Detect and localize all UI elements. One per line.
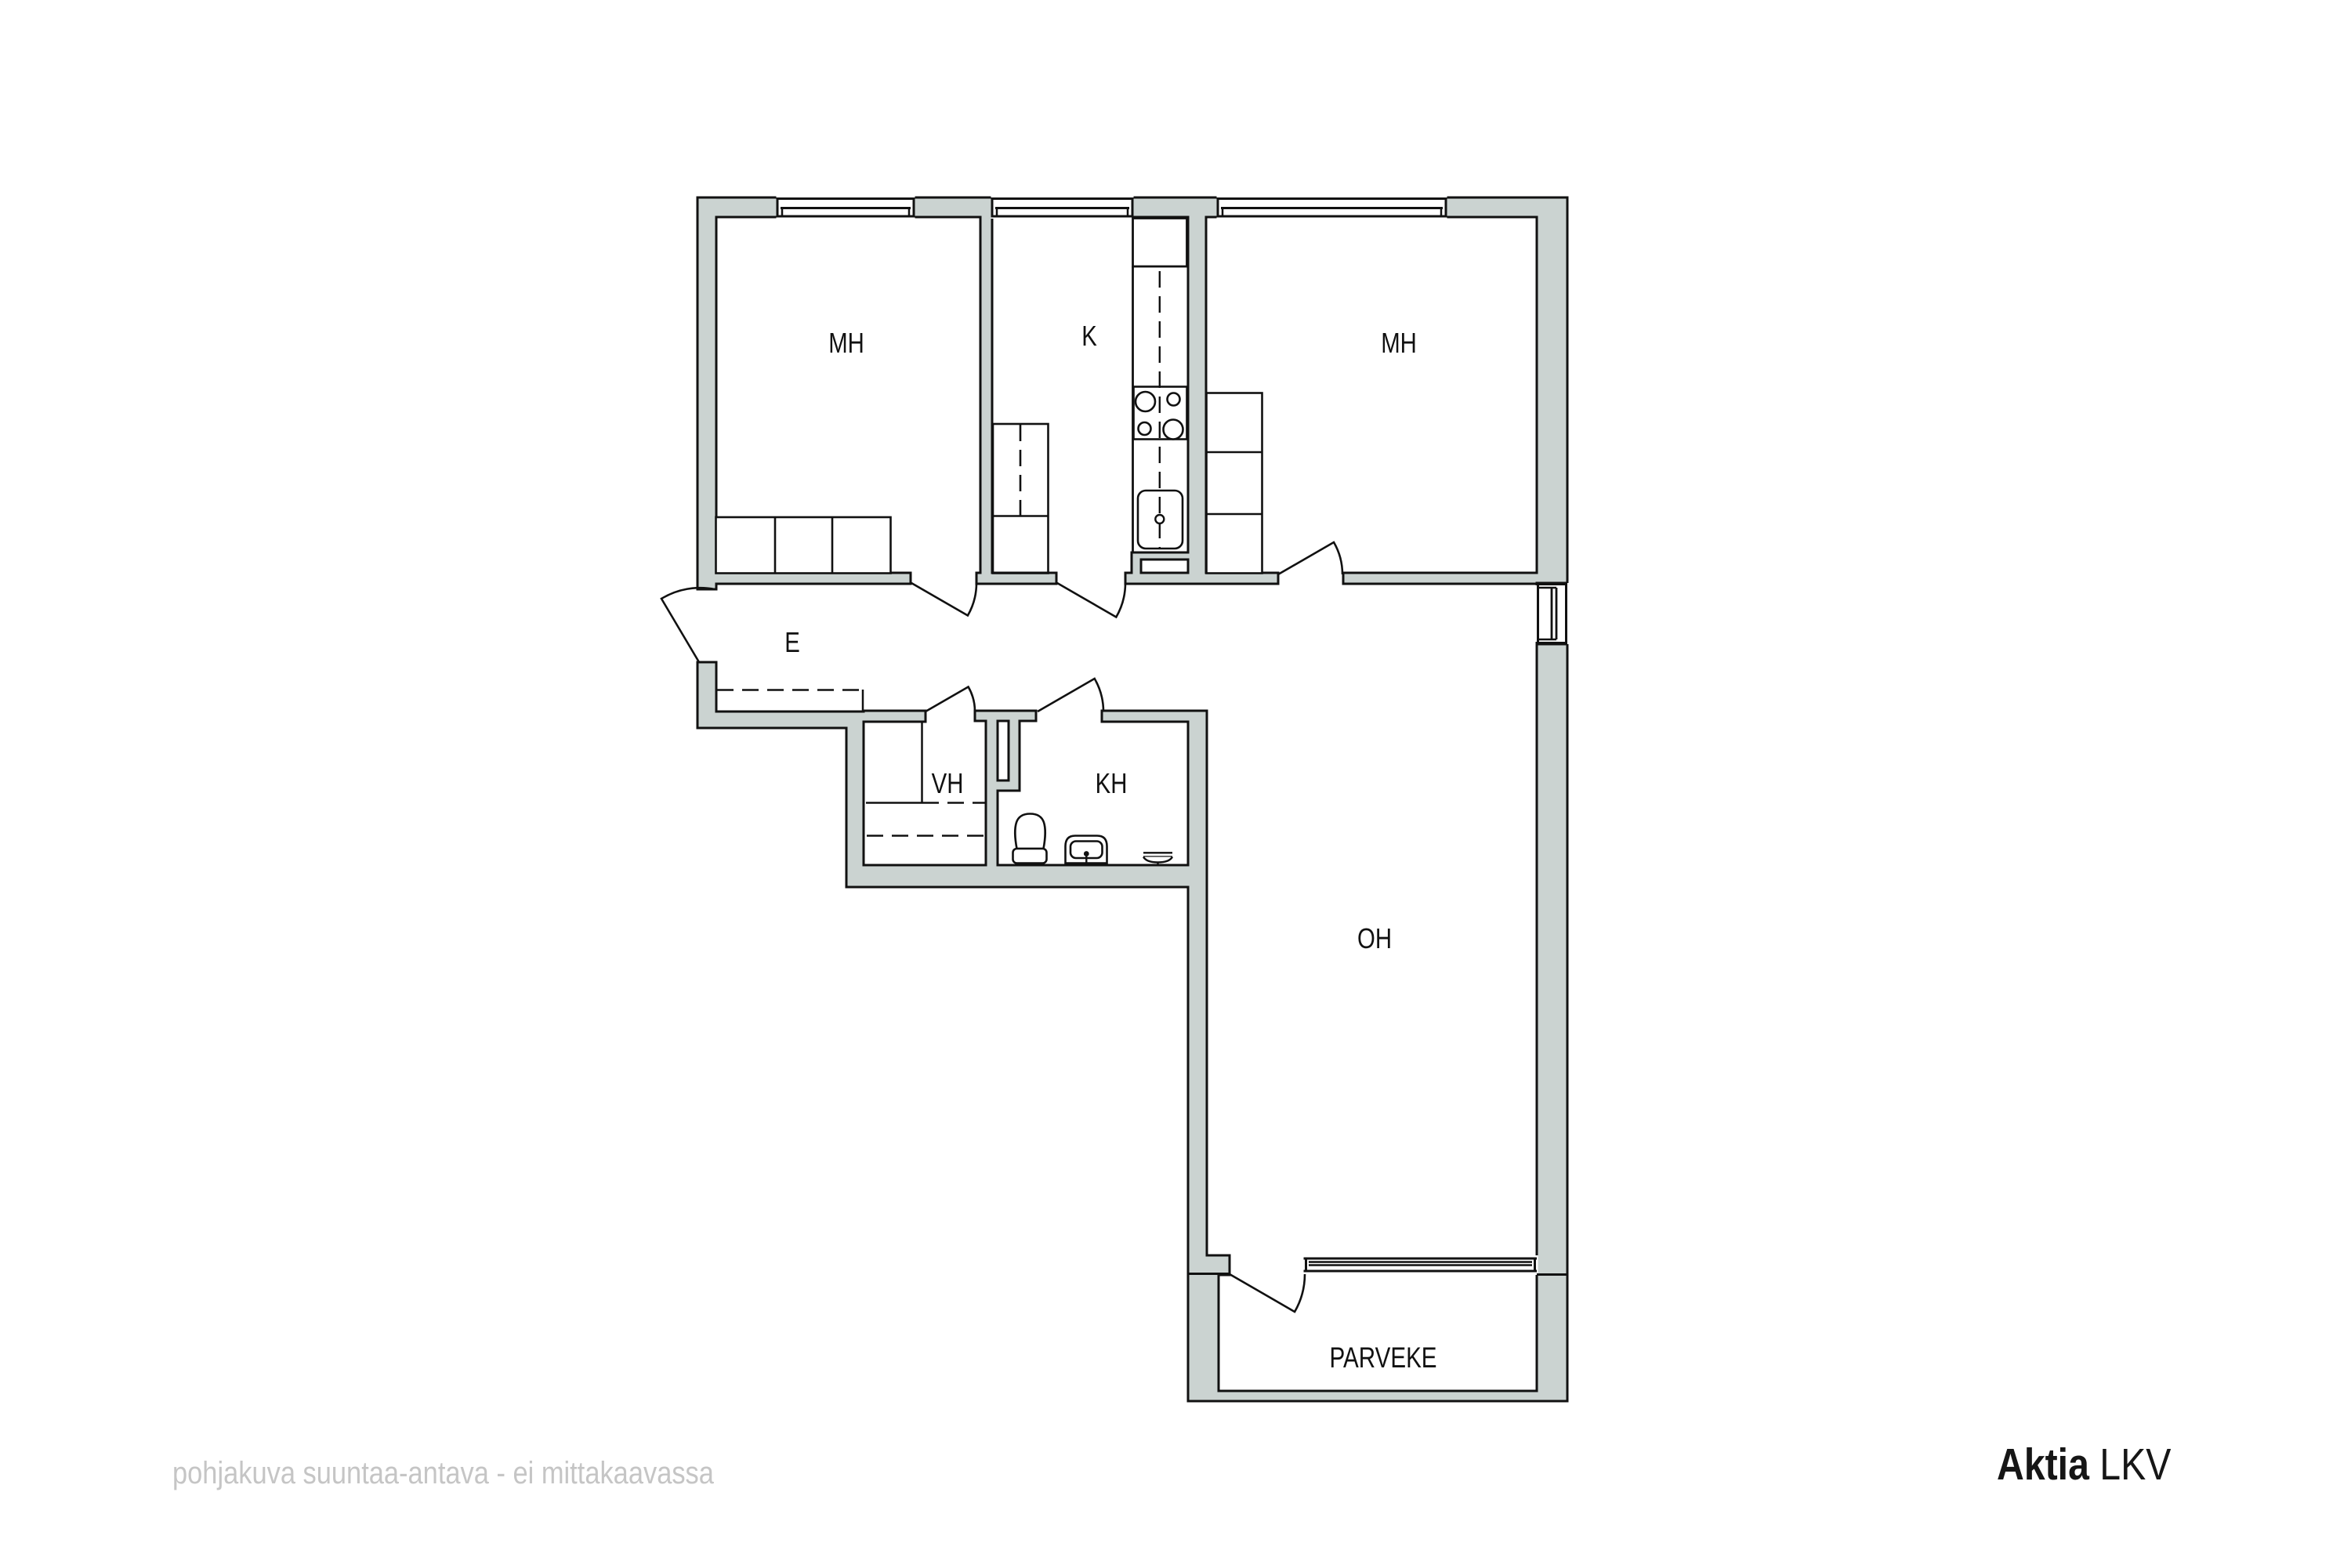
svg-text:E: E (784, 626, 800, 658)
svg-text:pohjakuva suuntaa-antava - ei: pohjakuva suuntaa-antava - ei mittakaava… (172, 1455, 714, 1490)
svg-text:OH: OH (1357, 922, 1392, 954)
svg-text:KH: KH (1096, 767, 1128, 799)
svg-text:K: K (1081, 320, 1097, 352)
svg-text:MH: MH (828, 327, 864, 359)
svg-text:VH: VH (932, 767, 964, 799)
svg-text:PARVEKE: PARVEKE (1329, 1342, 1436, 1374)
svg-text:MH: MH (1381, 327, 1417, 359)
svg-text:Aktia LKV: Aktia LKV (1997, 1439, 2171, 1490)
